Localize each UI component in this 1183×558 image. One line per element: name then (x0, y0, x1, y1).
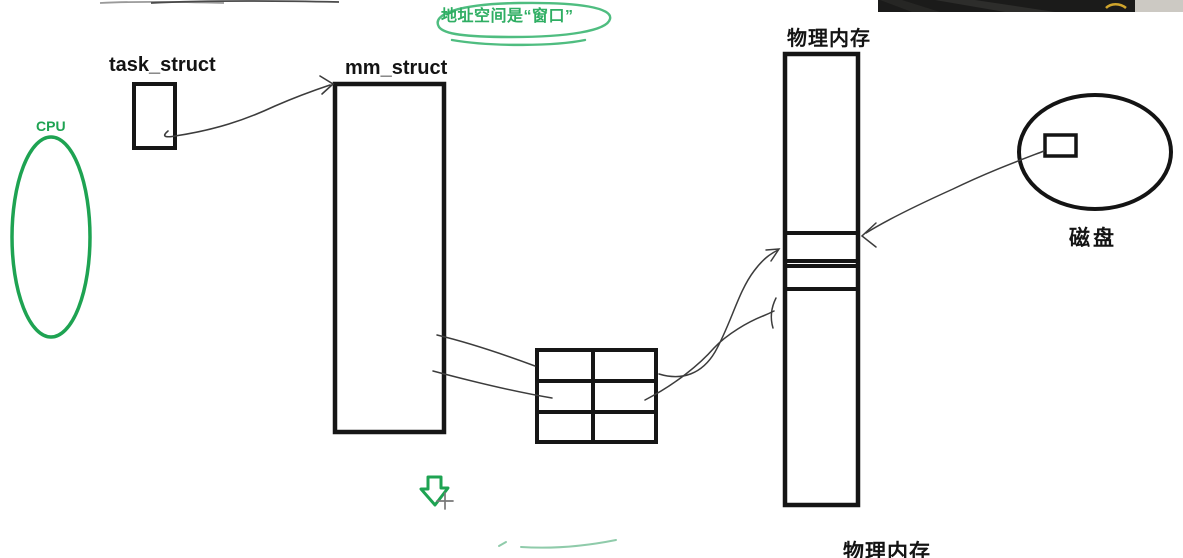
webcam-strip (878, 0, 1183, 12)
mm-struct-box (335, 84, 444, 432)
lines-mm-to-pagetable (433, 335, 552, 398)
arrow-task-to-mm (165, 76, 333, 137)
task-struct-box (134, 84, 175, 148)
cpu-ellipse (12, 137, 90, 337)
disk-block (1045, 135, 1076, 156)
physical-memory-label: 物理内存 (787, 29, 871, 49)
diagram-sketch-layer (0, 0, 1183, 558)
annotation-bubble-text: 地址空间是“窗口” (441, 9, 574, 25)
lecture-drawing-canvas: task_struct mm_struct CPU 物理内存 磁盘 地址空间是“… (0, 0, 1183, 558)
bottom-partial-label: 物理内存 (843, 542, 931, 558)
mm-struct-label: mm_struct (345, 58, 447, 78)
top-left-strokes (100, 1, 339, 3)
arrows-pagetable-to-physmem (645, 249, 779, 400)
arrow-disk-to-physmem (862, 151, 1044, 247)
cpu-label: CPU (36, 119, 66, 133)
task-struct-label: task_struct (109, 55, 216, 75)
bottom-sketch-arc (499, 540, 616, 548)
disk-label: 磁盘 (1069, 228, 1117, 249)
page-table-grid (537, 350, 656, 442)
physical-memory-box (785, 54, 858, 505)
